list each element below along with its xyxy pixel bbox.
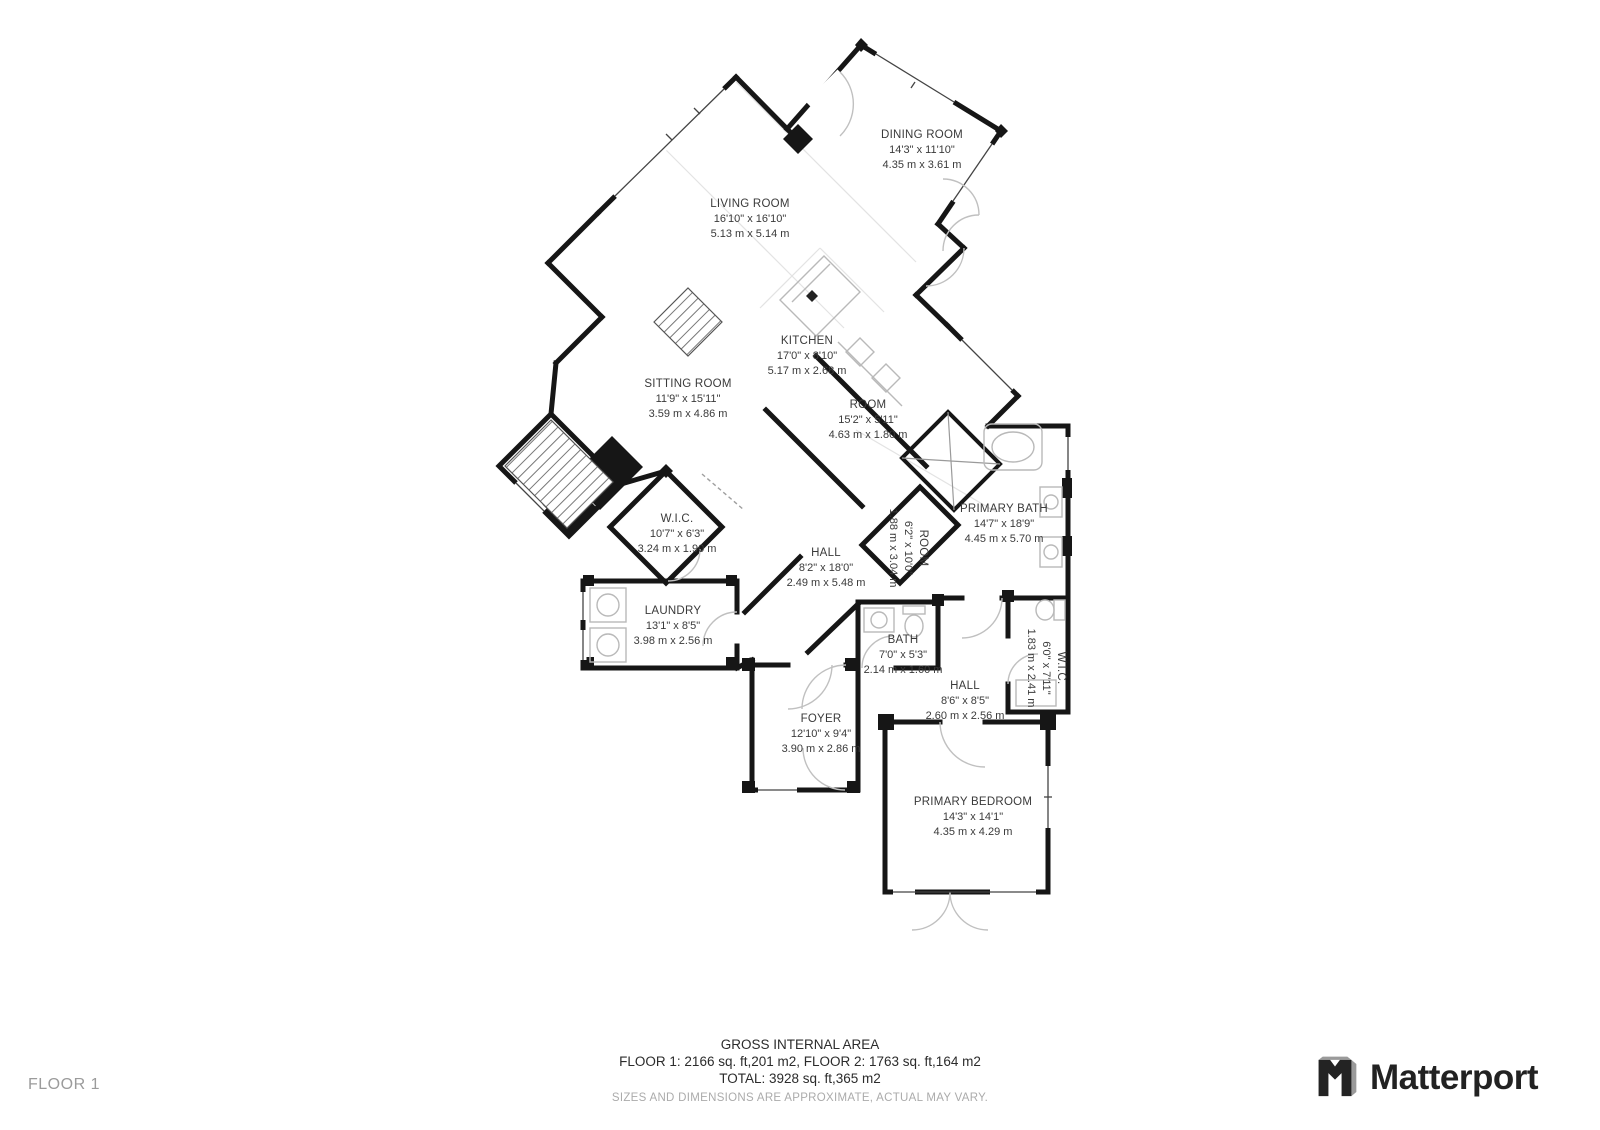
room-size-m: 5.17 m x 2.68 m <box>768 364 847 379</box>
room-label-laundry: LAUNDRY 13'1" x 8'5" 3.98 m x 2.56 m <box>634 604 713 648</box>
room-size-ft: 6'2" x 10'0" <box>900 509 915 588</box>
room-size-ft: 16'10" x 16'10" <box>710 212 789 227</box>
room-label-foyer: FOYER 12'10" x 9'4" 3.90 m x 2.86 m <box>782 712 861 756</box>
room-label-living-room: LIVING ROOM 16'10" x 16'10" 5.13 m x 5.1… <box>710 197 789 241</box>
gross-area-summary: GROSS INTERNAL AREA FLOOR 1: 2166 sq. ft… <box>612 1036 988 1107</box>
room-name: W.I.C. <box>1053 629 1068 708</box>
room-size-m: 3.98 m x 2.56 m <box>634 634 713 649</box>
floorplan-page: DINING ROOM 14'3" x 11'10" 4.35 m x 3.61… <box>0 0 1600 1130</box>
room-name: DINING ROOM <box>881 128 963 143</box>
room-label-room-pantry: ROOM 15'2" x 5'11" 4.63 m x 1.80 m <box>829 398 908 442</box>
brand-wordmark: Matterport <box>1370 1054 1538 1102</box>
room-size-ft: 13'1" x 8'5" <box>634 619 713 634</box>
room-name: PRIMARY BEDROOM <box>914 795 1032 810</box>
total-area-line: TOTAL: 3928 sq. ft,365 m2 <box>612 1070 988 1087</box>
room-size-ft: 11'9" x 15'11" <box>644 392 731 407</box>
gross-area-title: GROSS INTERNAL AREA <box>612 1036 988 1053</box>
room-size-ft: 6'0" x 7'11" <box>1038 629 1053 708</box>
room-size-ft: 10'7" x 6'3" <box>638 527 717 542</box>
room-size-m: 3.24 m x 1.90 m <box>638 542 717 557</box>
room-label-primary-bath: PRIMARY BATH 14'7" x 18'9" 4.45 m x 5.70… <box>960 502 1048 546</box>
room-size-ft: 14'7" x 18'9" <box>960 517 1048 532</box>
room-name: PRIMARY BATH <box>960 502 1048 517</box>
room-label-wic-2: W.I.C. 6'0" x 7'11" 1.83 m x 2.41 m <box>1024 629 1068 708</box>
room-name: W.I.C. <box>638 512 717 527</box>
room-size-m: 4.63 m x 1.80 m <box>829 428 908 443</box>
room-label-hall-2: HALL 8'6" x 8'5" 2.60 m x 2.56 m <box>926 679 1005 723</box>
room-name: ROOM <box>915 509 930 588</box>
room-size-m: 2.49 m x 5.48 m <box>787 576 866 591</box>
room-name: FOYER <box>782 712 861 727</box>
room-name: BATH <box>864 633 943 648</box>
room-label-dining-room: DINING ROOM 14'3" x 11'10" 4.35 m x 3.61… <box>881 128 963 172</box>
room-name: ROOM <box>829 398 908 413</box>
dimensions-disclaimer: SIZES AND DIMENSIONS ARE APPROXIMATE, AC… <box>612 1090 988 1107</box>
room-size-m: 2.60 m x 2.56 m <box>926 709 1005 724</box>
room-label-kitchen: KITCHEN 17'0" x 8'10" 5.17 m x 2.68 m <box>768 334 847 378</box>
room-size-ft: 8'2" x 18'0" <box>787 561 866 576</box>
room-size-m: 5.13 m x 5.14 m <box>710 227 789 242</box>
room-size-ft: 7'0" x 5'3" <box>864 648 943 663</box>
room-size-m: 4.35 m x 3.61 m <box>881 158 963 173</box>
room-size-m: 1.83 m x 2.41 m <box>1024 629 1039 708</box>
room-size-m: 4.35 m x 4.29 m <box>914 825 1032 840</box>
room-name: SITTING ROOM <box>644 377 731 392</box>
room-name: HALL <box>787 546 866 561</box>
room-size-m: 2.14 m x 1.60 m <box>864 663 943 678</box>
room-label-hall-1: HALL 8'2" x 18'0" 2.49 m x 5.48 m <box>787 546 866 590</box>
room-label-sitting-room: SITTING ROOM 11'9" x 15'11" 3.59 m x 4.8… <box>644 377 731 421</box>
room-name: LAUNDRY <box>634 604 713 619</box>
room-size-m: 4.45 m x 5.70 m <box>960 532 1048 547</box>
room-size-m: 3.59 m x 4.86 m <box>644 407 731 422</box>
room-label-room-small: ROOM 6'2" x 10'0" 1.88 m x 3.04 m <box>886 509 930 588</box>
room-label-primary-bedroom: PRIMARY BEDROOM 14'3" x 14'1" 4.35 m x 4… <box>914 795 1032 839</box>
floor-areas-line: FLOOR 1: 2166 sq. ft,201 m2, FLOOR 2: 17… <box>612 1053 988 1070</box>
room-size-ft: 8'6" x 8'5" <box>926 694 1005 709</box>
room-label-wic-1: W.I.C. 10'7" x 6'3" 3.24 m x 1.90 m <box>638 512 717 556</box>
room-size-m: 3.90 m x 2.86 m <box>782 742 861 757</box>
room-name: KITCHEN <box>768 334 847 349</box>
room-name: LIVING ROOM <box>710 197 789 212</box>
room-size-ft: 17'0" x 8'10" <box>768 349 847 364</box>
room-size-ft: 12'10" x 9'4" <box>782 727 861 742</box>
floor-indicator: FLOOR 1 <box>28 1076 100 1094</box>
room-label-bath: BATH 7'0" x 5'3" 2.14 m x 1.60 m <box>864 633 943 677</box>
room-size-ft: 15'2" x 5'11" <box>829 413 908 428</box>
room-size-m: 1.88 m x 3.04 m <box>886 509 901 588</box>
matterport-logo: Matterport <box>1312 1054 1538 1102</box>
room-size-ft: 14'3" x 11'10" <box>881 143 963 158</box>
room-name: HALL <box>926 679 1005 694</box>
matterport-cube-icon <box>1312 1055 1358 1101</box>
room-size-ft: 14'3" x 14'1" <box>914 810 1032 825</box>
